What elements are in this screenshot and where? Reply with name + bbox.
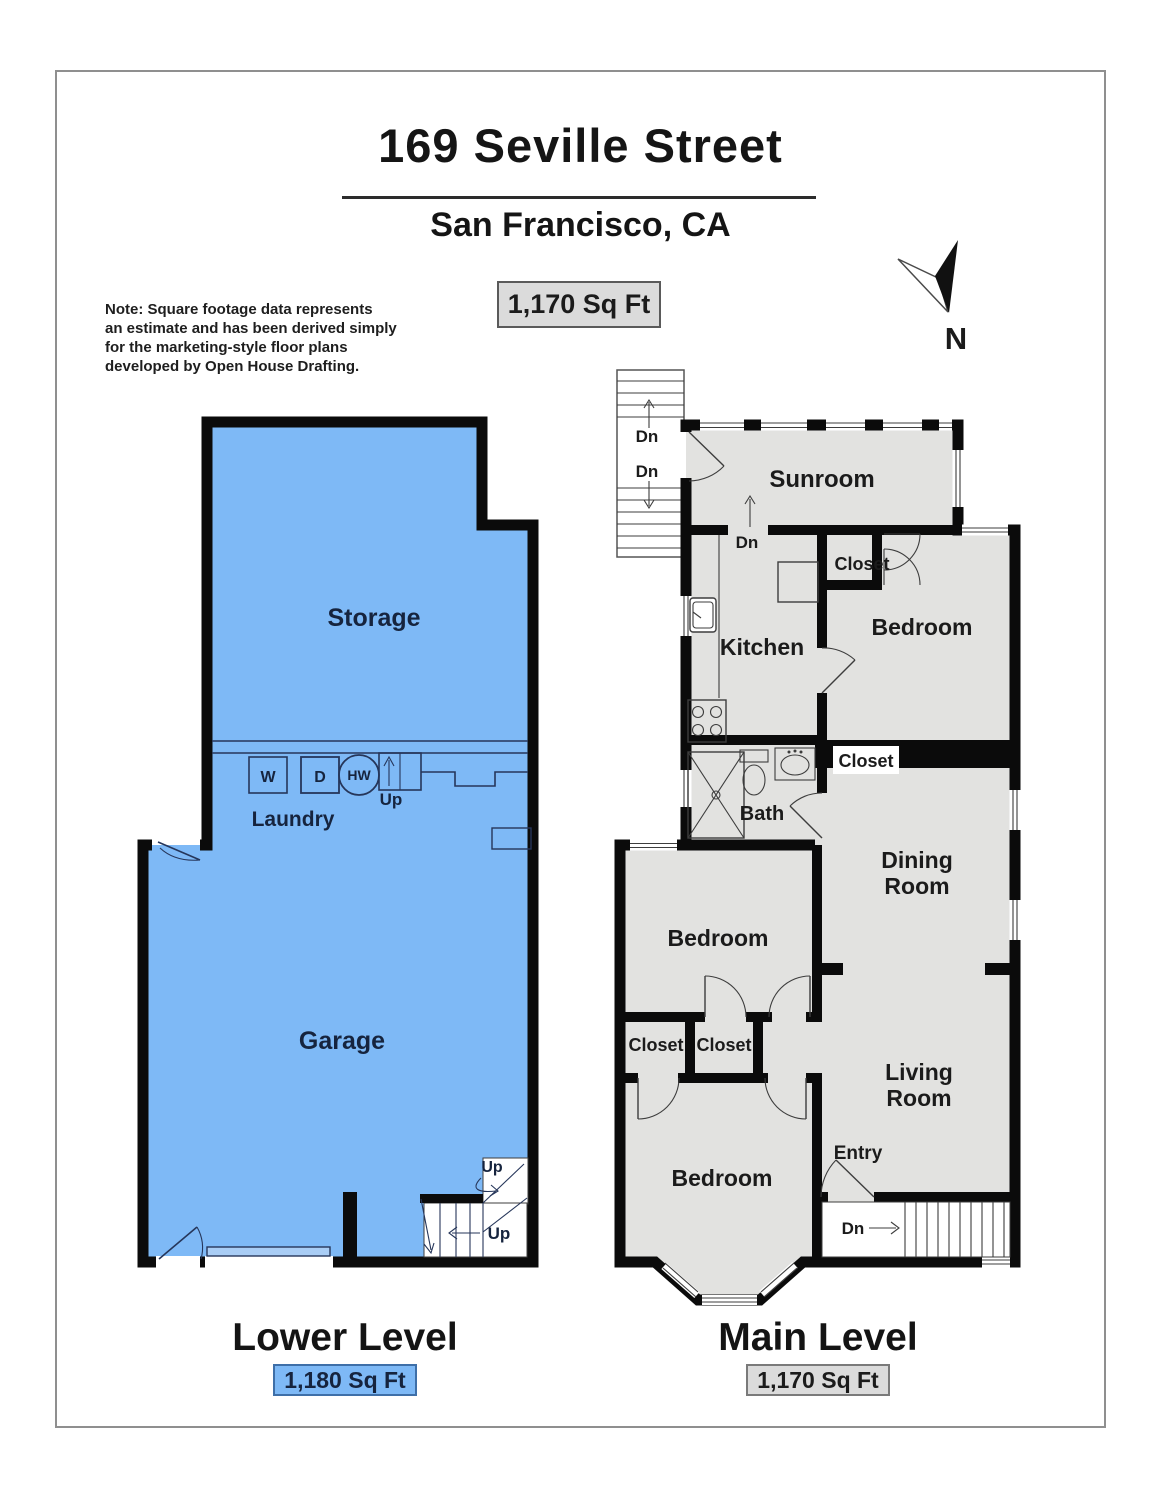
wall	[812, 1192, 828, 1202]
stairwell-wall	[874, 1192, 1015, 1202]
laundry-up-label: Up	[380, 790, 403, 809]
stairwell-window	[982, 1257, 1010, 1268]
wall-stub	[812, 963, 843, 975]
room-label-sunroom: Sunroom	[769, 466, 874, 493]
room-label-closet-right: Closet	[696, 1035, 751, 1055]
room-label-living-2: Room	[886, 1085, 951, 1111]
wall	[817, 768, 827, 793]
wall	[768, 525, 958, 535]
room-label-storage: Storage	[327, 604, 420, 632]
sunroom-side-window	[953, 450, 964, 507]
wall	[681, 735, 820, 745]
room-label-closet-left: Closet	[628, 1035, 683, 1055]
water-heater-label: HW	[347, 767, 371, 783]
room-label-closet-hall: Closet	[838, 751, 893, 771]
room-label-dining-1: Dining	[881, 847, 953, 873]
entry-up-label: Up	[488, 1224, 511, 1243]
winder-up-label: Up	[481, 1159, 503, 1176]
room-label-bedroom-bottom: Bedroom	[672, 1165, 773, 1191]
lower-level-sqft-badge: 1,180 Sq Ft	[273, 1364, 417, 1396]
garage-door-panel	[207, 1247, 330, 1256]
lower-level-outline	[143, 422, 533, 1262]
bath-window	[681, 770, 692, 807]
wall	[686, 840, 815, 851]
room-label-living-1: Living	[885, 1059, 953, 1085]
compass: N	[898, 240, 967, 356]
room-label-dining-2: Room	[884, 873, 949, 899]
wall	[817, 693, 827, 740]
garage-rear-door-opening	[156, 1256, 200, 1268]
washer-label: W	[260, 769, 276, 786]
closet-wall	[685, 1017, 695, 1078]
wall	[806, 1012, 822, 1022]
exterior-dn-upper-label: Dn	[636, 427, 659, 446]
room-label-garage: Garage	[299, 1027, 385, 1055]
front-dn-label: Dn	[842, 1219, 865, 1238]
interior-dn-label: Dn	[736, 533, 759, 552]
bedroom-mid-window	[630, 840, 677, 851]
stair-wall	[420, 1194, 483, 1203]
room-label-laundry: Laundry	[252, 808, 335, 831]
wall	[615, 1073, 638, 1083]
sunroom-windows	[700, 420, 952, 431]
lower-level-title: Lower Level	[195, 1316, 495, 1360]
room-label-closet-top: Closet	[834, 554, 889, 574]
dryer-label: D	[314, 769, 326, 786]
room-label-bedroom-mid: Bedroom	[668, 925, 769, 951]
bedroom-top-window	[962, 525, 1008, 536]
sink-icon	[690, 598, 716, 632]
main-level-plan: Dn Dn	[615, 370, 1021, 1305]
exterior-dn-lower-label: Dn	[636, 462, 659, 481]
main-level-title: Main Level	[668, 1316, 968, 1360]
room-label-kitchen: Kitchen	[720, 634, 804, 660]
wall	[678, 1073, 768, 1083]
wall-stub	[985, 963, 1015, 975]
wall	[812, 1078, 822, 1262]
closet-wall	[753, 1017, 763, 1078]
garage-door-opening	[205, 1256, 333, 1268]
room-label-entry: Entry	[834, 1143, 883, 1164]
floor-plan-page: 169 Seville Street San Francisco, CA 1,1…	[0, 0, 1159, 1499]
lower-level-plan: W D HW Up	[143, 422, 533, 1268]
main-level-sqft-badge: 1,170 Sq Ft	[746, 1364, 890, 1396]
closet-wall	[820, 580, 878, 590]
room-label-bedroom-top: Bedroom	[872, 614, 973, 640]
wall-stub	[343, 1192, 357, 1262]
wall	[812, 845, 822, 963]
wall	[812, 975, 822, 1017]
floor-plan-drawing: N W D HW	[0, 0, 1159, 1499]
wall	[683, 525, 728, 535]
room-label-bath: Bath	[740, 803, 784, 825]
compass-label: N	[945, 321, 967, 356]
